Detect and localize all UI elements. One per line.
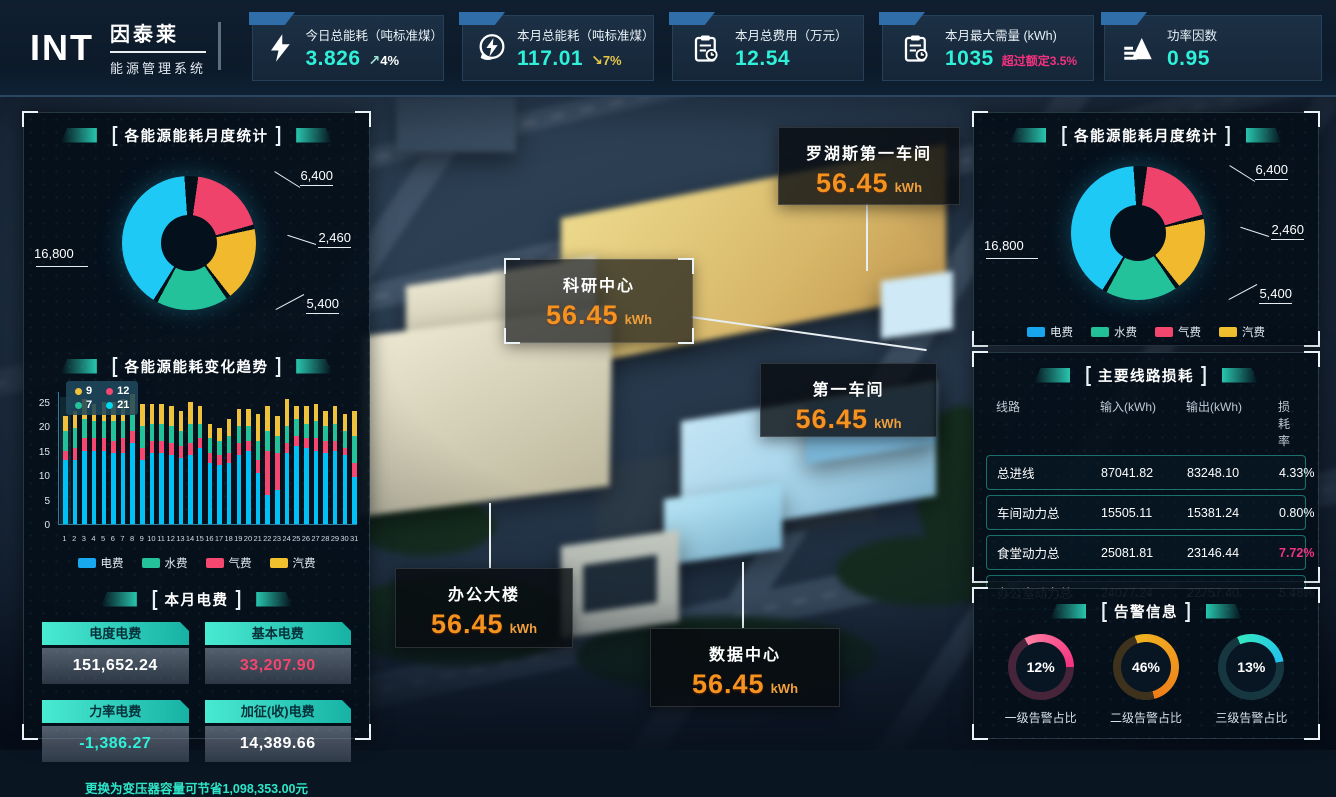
x-tick-label: 30 (340, 534, 349, 543)
bar-segment (63, 431, 68, 451)
bar-segment (294, 419, 299, 436)
tooltip-value: 21 (117, 399, 129, 411)
bar-segment (63, 460, 68, 524)
bar-segment (111, 453, 116, 524)
x-tick-label: 3 (79, 534, 88, 543)
kpi-value: 12.54 (735, 47, 790, 71)
donut-callout: 2,460 (1271, 222, 1304, 237)
bar-segment (333, 451, 338, 525)
bar-segment (130, 443, 135, 524)
bill-box-power-rate-charge: 力率电费 -1,386.27 (42, 700, 189, 762)
gauge-label: 三级告警占比 (1215, 709, 1287, 726)
bar-segment (73, 448, 78, 460)
kpi-label: 今日总能耗（吨标准煤） (305, 25, 443, 44)
x-tick-label: 13 (176, 534, 185, 543)
bar-segment (343, 414, 348, 431)
bar-segment (285, 426, 290, 443)
bill-box-value: 33,207.90 (205, 648, 352, 684)
legend-label: 电费 (1050, 324, 1073, 340)
corner-decoration (972, 724, 988, 740)
bar-segment (256, 441, 261, 461)
building-name: 办公大楼 (396, 581, 572, 605)
stacked-bar[interactable] (73, 411, 78, 524)
bar-segment (352, 463, 357, 478)
stacked-bar[interactable] (285, 399, 290, 524)
bar-segment (188, 455, 193, 524)
gauge-label: 二级告警占比 (1110, 709, 1182, 726)
bar-segment (150, 453, 155, 524)
alarm-gauges: 12% 一级告警占比 46% 二级告警占比 13% 三级告警占比 (974, 634, 1318, 726)
bar-segment (169, 426, 174, 443)
alarm-gauge-level1: 12% 一级告警占比 (1005, 634, 1077, 726)
x-tick-label: 15 (195, 534, 204, 543)
x-tick-label: 10 (147, 534, 156, 543)
bar-segment (102, 421, 107, 438)
x-tick-label: 16 (205, 534, 214, 543)
title-bracket: [ (112, 123, 118, 148)
leader-line (489, 503, 491, 568)
x-tick-label: 25 (292, 534, 301, 543)
building-name: 罗湖斯第一车间 (779, 140, 959, 164)
donut-callout: 5,400 (306, 296, 339, 311)
bar-segment (92, 421, 97, 438)
stacked-bar[interactable] (102, 402, 107, 524)
x-tick-label: 26 (301, 534, 310, 543)
energy-unit: kWh (874, 416, 901, 431)
corner-decoration (504, 328, 520, 344)
corner-decoration (504, 258, 520, 274)
bar-segment (323, 426, 328, 441)
loss-column-header: 输出(kWh) (1186, 398, 1278, 449)
stacked-bar[interactable] (265, 406, 270, 524)
stacked-bar[interactable] (323, 411, 328, 524)
loss-column-header: 损耗率 (1278, 398, 1296, 449)
gauge-percent: 13% (1226, 642, 1276, 692)
alarm-panel: [ 告警信息 ] 12% 一级告警占比 46% 二级告警占比 13% 三级告警占… (973, 588, 1319, 739)
corner-decoration (972, 567, 988, 583)
stacked-bar[interactable] (159, 404, 164, 524)
bar-segment (111, 441, 116, 453)
map-label-data-center[interactable]: 数据中心 56.45kWh (650, 628, 840, 707)
leader-line (742, 562, 744, 628)
bar-segment (343, 431, 348, 448)
kpi-card-max-demand: 本月最大需量 (kWh) 1035 超过额定3.5% (882, 15, 1094, 81)
legend-label: 电费 (101, 555, 124, 571)
x-tick-label: 5 (99, 534, 108, 543)
bar-segment (237, 455, 242, 524)
trend-legend: 电费水费气费汽费 (24, 555, 369, 571)
stacked-bar[interactable] (227, 419, 232, 524)
section-title-month-bill: [ 本月电费 ] (24, 588, 369, 610)
corner-decoration (1304, 724, 1320, 740)
x-tick-label: 4 (89, 534, 98, 543)
legend-label: 气费 (229, 555, 252, 571)
title-decoration (1050, 604, 1086, 619)
bar-segment (227, 463, 232, 524)
stacked-bar[interactable] (237, 409, 242, 524)
bar-segment (217, 428, 222, 440)
loss-table-header: 线路输入(kWh)输出(kWh)损耗率 (974, 398, 1318, 449)
donut-callout: 5,400 (1259, 286, 1292, 301)
stacked-bar[interactable] (188, 402, 193, 524)
x-tick-label: 6 (108, 534, 117, 543)
table-cell: 总进线 (997, 463, 1101, 482)
title-bracket: ] (1225, 123, 1231, 148)
legend-item[interactable]: 汽费 (270, 555, 316, 571)
tooltip-item: 7 (75, 399, 92, 411)
energy-value: 56.45 (795, 404, 868, 434)
donut-chart[interactable] (1071, 166, 1205, 300)
bar-segment (102, 451, 107, 525)
bar-segment (208, 463, 213, 524)
bill-box-surcharge: 加征(收)电费 14,389.66 (205, 700, 352, 762)
title-bracket: ] (1201, 363, 1207, 388)
kpi-card-month-cost: 本月总费用（万元） 12.54 (672, 15, 864, 81)
y-tick-label: 0 (24, 520, 50, 531)
title-bracket: ] (276, 123, 282, 148)
eco-energy-icon (475, 31, 509, 65)
bar-segment (179, 411, 184, 431)
bar-segment (314, 451, 319, 525)
bar-segment (275, 490, 280, 524)
donut-callout: 16,800 (34, 246, 74, 261)
bar-segment (159, 404, 164, 424)
stacked-bar[interactable] (275, 416, 280, 524)
table-cell: 食堂动力总 (997, 543, 1101, 562)
bar-segment (208, 438, 213, 453)
tooltip-value: 7 (86, 399, 92, 411)
bill-box-header: 电度电费 (42, 622, 189, 645)
bar-segment (285, 443, 290, 453)
bar-segment (304, 448, 309, 524)
stacked-bar[interactable] (343, 414, 348, 524)
corner-decoration (972, 587, 988, 603)
corner-decoration (972, 331, 988, 347)
corner-decoration (1304, 331, 1320, 347)
x-tick-label: 31 (350, 534, 359, 543)
map-label-office-building[interactable]: 办公大楼 56.45kWh (395, 568, 573, 648)
bar-segment (323, 453, 328, 524)
stacked-bar[interactable] (314, 404, 319, 524)
bar-segment (73, 460, 78, 524)
bar-segment (159, 424, 164, 441)
legend-label: 气费 (1178, 324, 1201, 340)
bar-segment (130, 431, 135, 443)
legend-label: 水费 (165, 555, 188, 571)
bar-segment (179, 446, 184, 458)
map-label-workshop1[interactable]: 第一车间 56.45kWh (760, 363, 937, 437)
bar-segment (256, 414, 261, 441)
stacked-bar[interactable] (179, 411, 184, 524)
bar-segment (265, 451, 270, 495)
bill-box-header: 加征(收)电费 (205, 700, 352, 723)
stacked-bar[interactable] (63, 416, 68, 524)
bar-segment (333, 441, 338, 451)
brand-block: 因泰莱 能源管理系统 (110, 18, 206, 77)
section-title-monthly-energy: [ 各能源能耗月度统计 ] (974, 124, 1318, 146)
brand-logo: INT 因泰莱 能源管理系统 (30, 18, 206, 77)
x-tick-label: 28 (321, 534, 330, 543)
stacked-bar[interactable] (140, 404, 145, 524)
legend-swatch (1155, 327, 1173, 337)
tooltip-item: 9 (75, 385, 92, 397)
energy-value: 56.45 (431, 609, 504, 639)
x-tick-label: 21 (253, 534, 262, 543)
chart-tooltip: 912721 (66, 381, 138, 415)
bar-segment (343, 455, 348, 524)
legend-label: 汽费 (1242, 324, 1265, 340)
y-tick-label: 20 (24, 422, 50, 433)
clipboard-clock-icon (895, 33, 937, 63)
legend-item[interactable]: 电费 (1027, 324, 1073, 340)
stacked-bar[interactable] (256, 414, 261, 524)
legend-swatch (1091, 327, 1109, 337)
section-title-line-loss: [ 主要线路损耗 ] (974, 364, 1318, 386)
section-title-monthly-energy: [ 各能源能耗月度统计 ] (24, 124, 369, 146)
monthly-energy-donut-chart[interactable]: 6,400 2,460 5,400 16,800 (974, 146, 1318, 322)
bar-segment (82, 419, 87, 439)
stacked-bar[interactable] (294, 406, 299, 524)
clipboard-clock-icon (685, 33, 727, 63)
bar-segment (333, 424, 338, 441)
bar-segment (323, 441, 328, 453)
corner-decoration (1304, 351, 1320, 367)
bar-segment (256, 473, 261, 524)
donut-callout: 2,460 (318, 230, 351, 245)
title-bracket: ] (276, 354, 282, 379)
bar-segment (92, 438, 97, 450)
bar-segment (63, 416, 68, 431)
legend-item[interactable]: 水费 (1091, 324, 1137, 340)
table-cell: 25081.81 (1101, 546, 1187, 560)
stacked-bar[interactable] (217, 428, 222, 524)
bar-segment (285, 399, 290, 426)
title-bracket: ] (1185, 599, 1191, 624)
title-decoration (296, 128, 332, 143)
bar-segment (82, 438, 87, 450)
corner-decoration (678, 258, 694, 274)
stacked-bar[interactable] (333, 406, 338, 524)
corner-decoration (355, 724, 371, 740)
bar-segment (294, 406, 299, 418)
bar-segment (130, 414, 135, 431)
donut-callout: 6,400 (300, 168, 333, 183)
bar-segment (63, 451, 68, 461)
bar-segment (265, 406, 270, 431)
bar-segment (150, 424, 155, 441)
bar-segment (121, 421, 126, 438)
bar-segment (169, 443, 174, 455)
corner-decoration (1304, 567, 1320, 583)
x-tick-label: 8 (128, 534, 137, 543)
bar-segment (294, 446, 299, 524)
bar-segment (237, 443, 242, 455)
corner-decoration (22, 111, 38, 127)
bar-segment (304, 424, 309, 439)
title-bracket: ] (236, 587, 242, 612)
right-monthly-energy-panel: [ 各能源能耗月度统计 ] 6,400 2,460 5,400 16,800 电… (973, 112, 1319, 346)
donut-legend: 电费水费气费汽费 (974, 324, 1318, 340)
logo-text: INT (30, 27, 94, 69)
bar-segment (352, 477, 357, 524)
x-tick-label: 11 (157, 534, 166, 543)
legend-item[interactable]: 汽费 (1219, 324, 1265, 340)
legend-swatch (78, 558, 96, 568)
stacked-bar[interactable] (304, 406, 309, 524)
power-factor-icon (1117, 33, 1159, 63)
title-decoration (256, 592, 292, 607)
tooltip-item: 21 (106, 399, 129, 411)
y-tick-label: 10 (24, 471, 50, 482)
x-tick-label: 29 (330, 534, 339, 543)
bar-segment (82, 451, 87, 525)
title-decoration (1246, 128, 1282, 143)
bar-segment (159, 453, 164, 524)
stacked-bar[interactable] (92, 404, 97, 524)
bar-segment (188, 443, 193, 455)
legend-swatch (270, 558, 288, 568)
bill-box-value: 14,389.66 (205, 726, 352, 762)
transformer-saving-note: 更换为变压器容量可节省1,098,353.00元 (24, 778, 369, 797)
kpi-label: 功率因数 (1167, 25, 1217, 44)
stacked-bar[interactable] (208, 424, 213, 524)
bar-segment (237, 426, 242, 443)
gauge-ring: 12% (1008, 634, 1074, 700)
title-decoration (1222, 368, 1258, 383)
table-cell: 0.80% (1279, 506, 1314, 520)
bar-segment (227, 419, 232, 436)
donut-hole (161, 215, 217, 271)
x-tick-label: 2 (70, 534, 79, 543)
energy-unit: kWh (895, 180, 922, 195)
bar-segment (304, 438, 309, 448)
map-label-research-center[interactable]: 科研中心 56.45kWh (505, 259, 693, 343)
energy-value: 56.45 (816, 168, 889, 198)
x-tick-label: 14 (186, 534, 195, 543)
bar-segment (275, 416, 280, 436)
legend-item[interactable]: 气费 (1155, 324, 1201, 340)
bill-box-header: 力率电费 (42, 700, 189, 723)
x-tick-label: 18 (224, 534, 233, 543)
kpi-card-today-energy: 今日总能耗（吨标准煤） 3.826 ↗4% (252, 15, 444, 81)
title-decoration (101, 592, 137, 607)
corner-decoration (355, 111, 371, 127)
gauge-label: 一级告警占比 (1005, 709, 1077, 726)
table-row[interactable]: 食堂动力总25081.8123146.447.72% (986, 535, 1306, 570)
x-axis-labels: 1234567891011121314151617181920212223242… (60, 534, 359, 543)
bar-segment (140, 404, 145, 426)
title-bracket: [ (1101, 599, 1107, 624)
kpi-card-month-energy: 本月总能耗（吨标准煤） 117.01 ↘7% (462, 15, 654, 81)
gauge-ring: 13% (1218, 634, 1284, 700)
bar-segment (217, 455, 222, 465)
table-cell: 7.72% (1279, 546, 1314, 560)
title-decoration (296, 359, 332, 374)
bar-segment (140, 448, 145, 460)
stacked-bar[interactable] (246, 409, 251, 524)
x-tick-label: 12 (166, 534, 175, 543)
table-row[interactable]: 车间动力总15505.1115381.240.80% (986, 495, 1306, 530)
tooltip-dot (106, 388, 113, 395)
bar-segment (285, 453, 290, 524)
legend-swatch (1219, 327, 1237, 337)
building-name: 科研中心 (506, 272, 692, 296)
table-row[interactable]: 总进线87041.8283248.104.33% (986, 455, 1306, 490)
legend-item[interactable]: 电费 (78, 555, 124, 571)
table-cell: 15381.24 (1187, 506, 1279, 520)
legend-item[interactable]: 气费 (206, 555, 252, 571)
bar-segment (275, 436, 280, 453)
kpi-value: 1035 (945, 47, 994, 71)
x-tick-label: 22 (263, 534, 272, 543)
tooltip-item: 12 (106, 385, 129, 397)
donut-chart[interactable] (122, 176, 256, 310)
map-label-luohusi-workshop1[interactable]: 罗湖斯第一车间 56.45kWh (778, 127, 960, 205)
building-name: 数据中心 (651, 641, 839, 665)
bar-segment (150, 404, 155, 424)
legend-item[interactable]: 水费 (142, 555, 188, 571)
x-tick-label: 17 (215, 534, 224, 543)
stacked-bar[interactable] (198, 406, 203, 524)
stacked-bar[interactable] (352, 411, 357, 524)
stacked-bar[interactable] (121, 399, 126, 524)
gauge-percent: 12% (1016, 642, 1066, 692)
bar-segment (314, 404, 319, 421)
bar-segment (121, 453, 126, 524)
monthly-energy-donut-chart[interactable]: 6,400 2,460 5,400 16,800 (24, 146, 369, 344)
tooltip-dot (75, 402, 82, 409)
bar-segment (92, 451, 97, 525)
energy-unit: kWh (625, 312, 652, 327)
corner-decoration (972, 351, 988, 367)
legend-swatch (142, 558, 160, 568)
kpi-label: 本月最大需量 (kWh) (945, 25, 1077, 44)
line-loss-panel: [ 主要线路损耗 ] 线路输入(kWh)输出(kWh)损耗率 总进线87041.… (973, 352, 1319, 582)
bill-box-energy-charge: 电度电费 151,652.24 (42, 622, 189, 684)
bar-segment (111, 421, 116, 441)
bar-segment (188, 424, 193, 444)
table-cell: 87041.82 (1101, 466, 1187, 480)
corner-decoration (22, 724, 38, 740)
energy-trend-chart[interactable]: 0510152025 12345678910111213141516171819… (24, 381, 369, 577)
x-tick-label: 20 (243, 534, 252, 543)
bar-segment (198, 406, 203, 423)
stacked-bar[interactable] (169, 406, 174, 524)
top-header-bar: INT 因泰莱 能源管理系统 今日总能耗（吨标准煤） 3.826 ↗4% (0, 0, 1336, 97)
kpi-value: 3.826 (305, 47, 360, 71)
bar-segment (343, 448, 348, 455)
section-title-energy-trend: [ 各能源能耗变化趋势 ] (24, 355, 369, 377)
y-tick-label: 15 (24, 447, 50, 458)
title-bracket: [ (1085, 363, 1091, 388)
stacked-bar[interactable] (82, 399, 87, 524)
table-cell: 23146.44 (1187, 546, 1279, 560)
legend-label: 汽费 (293, 555, 316, 571)
energy-value: 56.45 (546, 300, 619, 330)
bar-segment (140, 426, 145, 448)
x-tick-label: 23 (272, 534, 281, 543)
bill-box-header: 基本电费 (205, 622, 352, 645)
gauge-ring: 46% (1113, 634, 1179, 700)
bar-segment (140, 460, 145, 524)
title-bracket: [ (112, 354, 118, 379)
bar-segment (179, 431, 184, 446)
stacked-bar[interactable] (150, 404, 155, 524)
stacked-bar[interactable] (111, 402, 116, 524)
x-tick-label: 1 (60, 534, 69, 543)
title-decoration (1034, 368, 1070, 383)
bar-segment (159, 441, 164, 453)
